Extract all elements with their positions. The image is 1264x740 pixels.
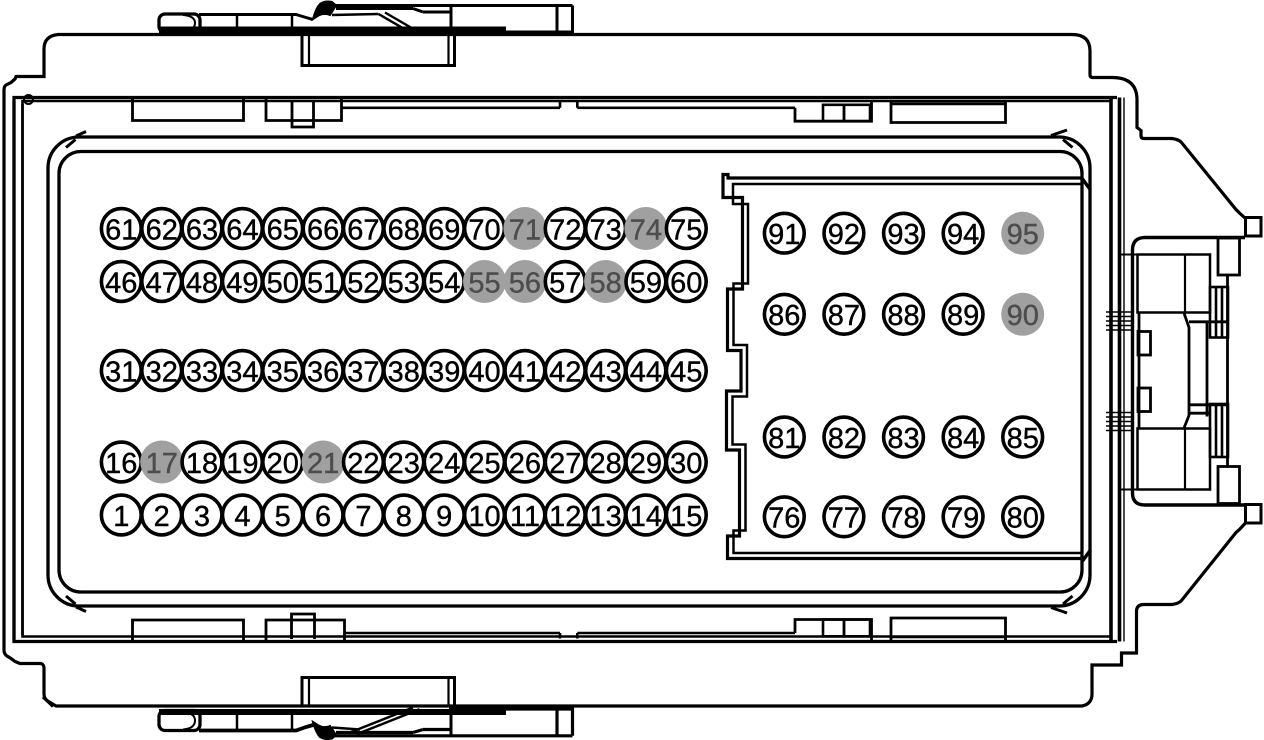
svg-text:61: 61 xyxy=(105,214,137,246)
svg-text:66: 66 xyxy=(307,214,339,246)
svg-text:70: 70 xyxy=(468,214,500,246)
svg-text:2: 2 xyxy=(154,501,170,533)
svg-text:16: 16 xyxy=(105,448,137,480)
svg-text:85: 85 xyxy=(1007,423,1039,455)
svg-text:40: 40 xyxy=(468,356,500,388)
svg-text:58: 58 xyxy=(589,267,621,299)
svg-text:71: 71 xyxy=(509,214,541,246)
svg-text:78: 78 xyxy=(887,503,919,535)
svg-text:24: 24 xyxy=(428,448,460,480)
svg-text:59: 59 xyxy=(630,267,662,299)
svg-text:46: 46 xyxy=(105,267,137,299)
svg-text:90: 90 xyxy=(1007,300,1039,332)
svg-text:55: 55 xyxy=(468,267,500,299)
svg-text:47: 47 xyxy=(146,267,178,299)
svg-text:6: 6 xyxy=(315,501,331,533)
svg-text:5: 5 xyxy=(275,501,291,533)
svg-text:67: 67 xyxy=(347,214,379,246)
svg-text:35: 35 xyxy=(267,356,299,388)
svg-text:44: 44 xyxy=(630,356,662,388)
svg-text:41: 41 xyxy=(509,356,541,388)
svg-text:25: 25 xyxy=(468,448,500,480)
svg-text:87: 87 xyxy=(828,300,860,332)
svg-text:9: 9 xyxy=(436,501,452,533)
svg-text:10: 10 xyxy=(468,501,500,533)
svg-text:18: 18 xyxy=(186,448,218,480)
svg-text:52: 52 xyxy=(347,267,379,299)
svg-text:95: 95 xyxy=(1007,219,1039,251)
svg-text:7: 7 xyxy=(355,501,371,533)
svg-text:21: 21 xyxy=(307,448,339,480)
svg-text:8: 8 xyxy=(396,501,412,533)
svg-text:53: 53 xyxy=(388,267,420,299)
svg-text:3: 3 xyxy=(194,501,210,533)
svg-text:81: 81 xyxy=(768,423,800,455)
svg-text:76: 76 xyxy=(768,503,800,535)
svg-text:93: 93 xyxy=(887,219,919,251)
svg-text:26: 26 xyxy=(509,448,541,480)
svg-text:80: 80 xyxy=(1007,503,1039,535)
svg-text:23: 23 xyxy=(388,448,420,480)
svg-text:91: 91 xyxy=(768,219,800,251)
svg-text:74: 74 xyxy=(630,214,662,246)
svg-text:69: 69 xyxy=(428,214,460,246)
svg-text:68: 68 xyxy=(388,214,420,246)
svg-text:17: 17 xyxy=(146,448,178,480)
svg-text:50: 50 xyxy=(267,267,299,299)
svg-text:75: 75 xyxy=(670,214,702,246)
svg-text:63: 63 xyxy=(186,214,218,246)
svg-text:51: 51 xyxy=(307,267,339,299)
svg-text:54: 54 xyxy=(428,267,460,299)
svg-text:39: 39 xyxy=(428,356,460,388)
svg-text:33: 33 xyxy=(186,356,218,388)
svg-text:73: 73 xyxy=(589,214,621,246)
svg-text:92: 92 xyxy=(828,219,860,251)
svg-text:14: 14 xyxy=(630,501,662,533)
svg-text:22: 22 xyxy=(347,448,379,480)
svg-text:64: 64 xyxy=(226,214,258,246)
svg-text:86: 86 xyxy=(768,300,800,332)
svg-text:13: 13 xyxy=(589,501,621,533)
svg-text:77: 77 xyxy=(828,503,860,535)
svg-text:36: 36 xyxy=(307,356,339,388)
svg-text:37: 37 xyxy=(347,356,379,388)
svg-text:42: 42 xyxy=(549,356,581,388)
svg-text:49: 49 xyxy=(226,267,258,299)
svg-text:60: 60 xyxy=(670,267,702,299)
svg-text:4: 4 xyxy=(234,501,250,533)
svg-text:56: 56 xyxy=(509,267,541,299)
svg-text:43: 43 xyxy=(589,356,621,388)
svg-text:79: 79 xyxy=(947,503,979,535)
svg-text:15: 15 xyxy=(670,501,702,533)
svg-text:31: 31 xyxy=(105,356,137,388)
svg-text:27: 27 xyxy=(549,448,581,480)
svg-text:57: 57 xyxy=(549,267,581,299)
svg-text:62: 62 xyxy=(146,214,178,246)
svg-text:12: 12 xyxy=(549,501,581,533)
svg-text:72: 72 xyxy=(549,214,581,246)
svg-text:34: 34 xyxy=(226,356,258,388)
svg-text:1: 1 xyxy=(113,501,129,533)
svg-text:28: 28 xyxy=(589,448,621,480)
svg-text:32: 32 xyxy=(146,356,178,388)
svg-text:30: 30 xyxy=(670,448,702,480)
svg-text:38: 38 xyxy=(388,356,420,388)
svg-text:89: 89 xyxy=(947,300,979,332)
svg-text:48: 48 xyxy=(186,267,218,299)
svg-text:11: 11 xyxy=(510,501,540,533)
svg-text:45: 45 xyxy=(670,356,702,388)
svg-text:20: 20 xyxy=(267,448,299,480)
svg-text:29: 29 xyxy=(630,448,662,480)
svg-text:65: 65 xyxy=(267,214,299,246)
svg-text:94: 94 xyxy=(947,219,979,251)
svg-text:19: 19 xyxy=(226,448,258,480)
svg-text:84: 84 xyxy=(947,423,979,455)
svg-text:88: 88 xyxy=(887,300,919,332)
svg-text:83: 83 xyxy=(887,423,919,455)
svg-text:82: 82 xyxy=(828,423,860,455)
